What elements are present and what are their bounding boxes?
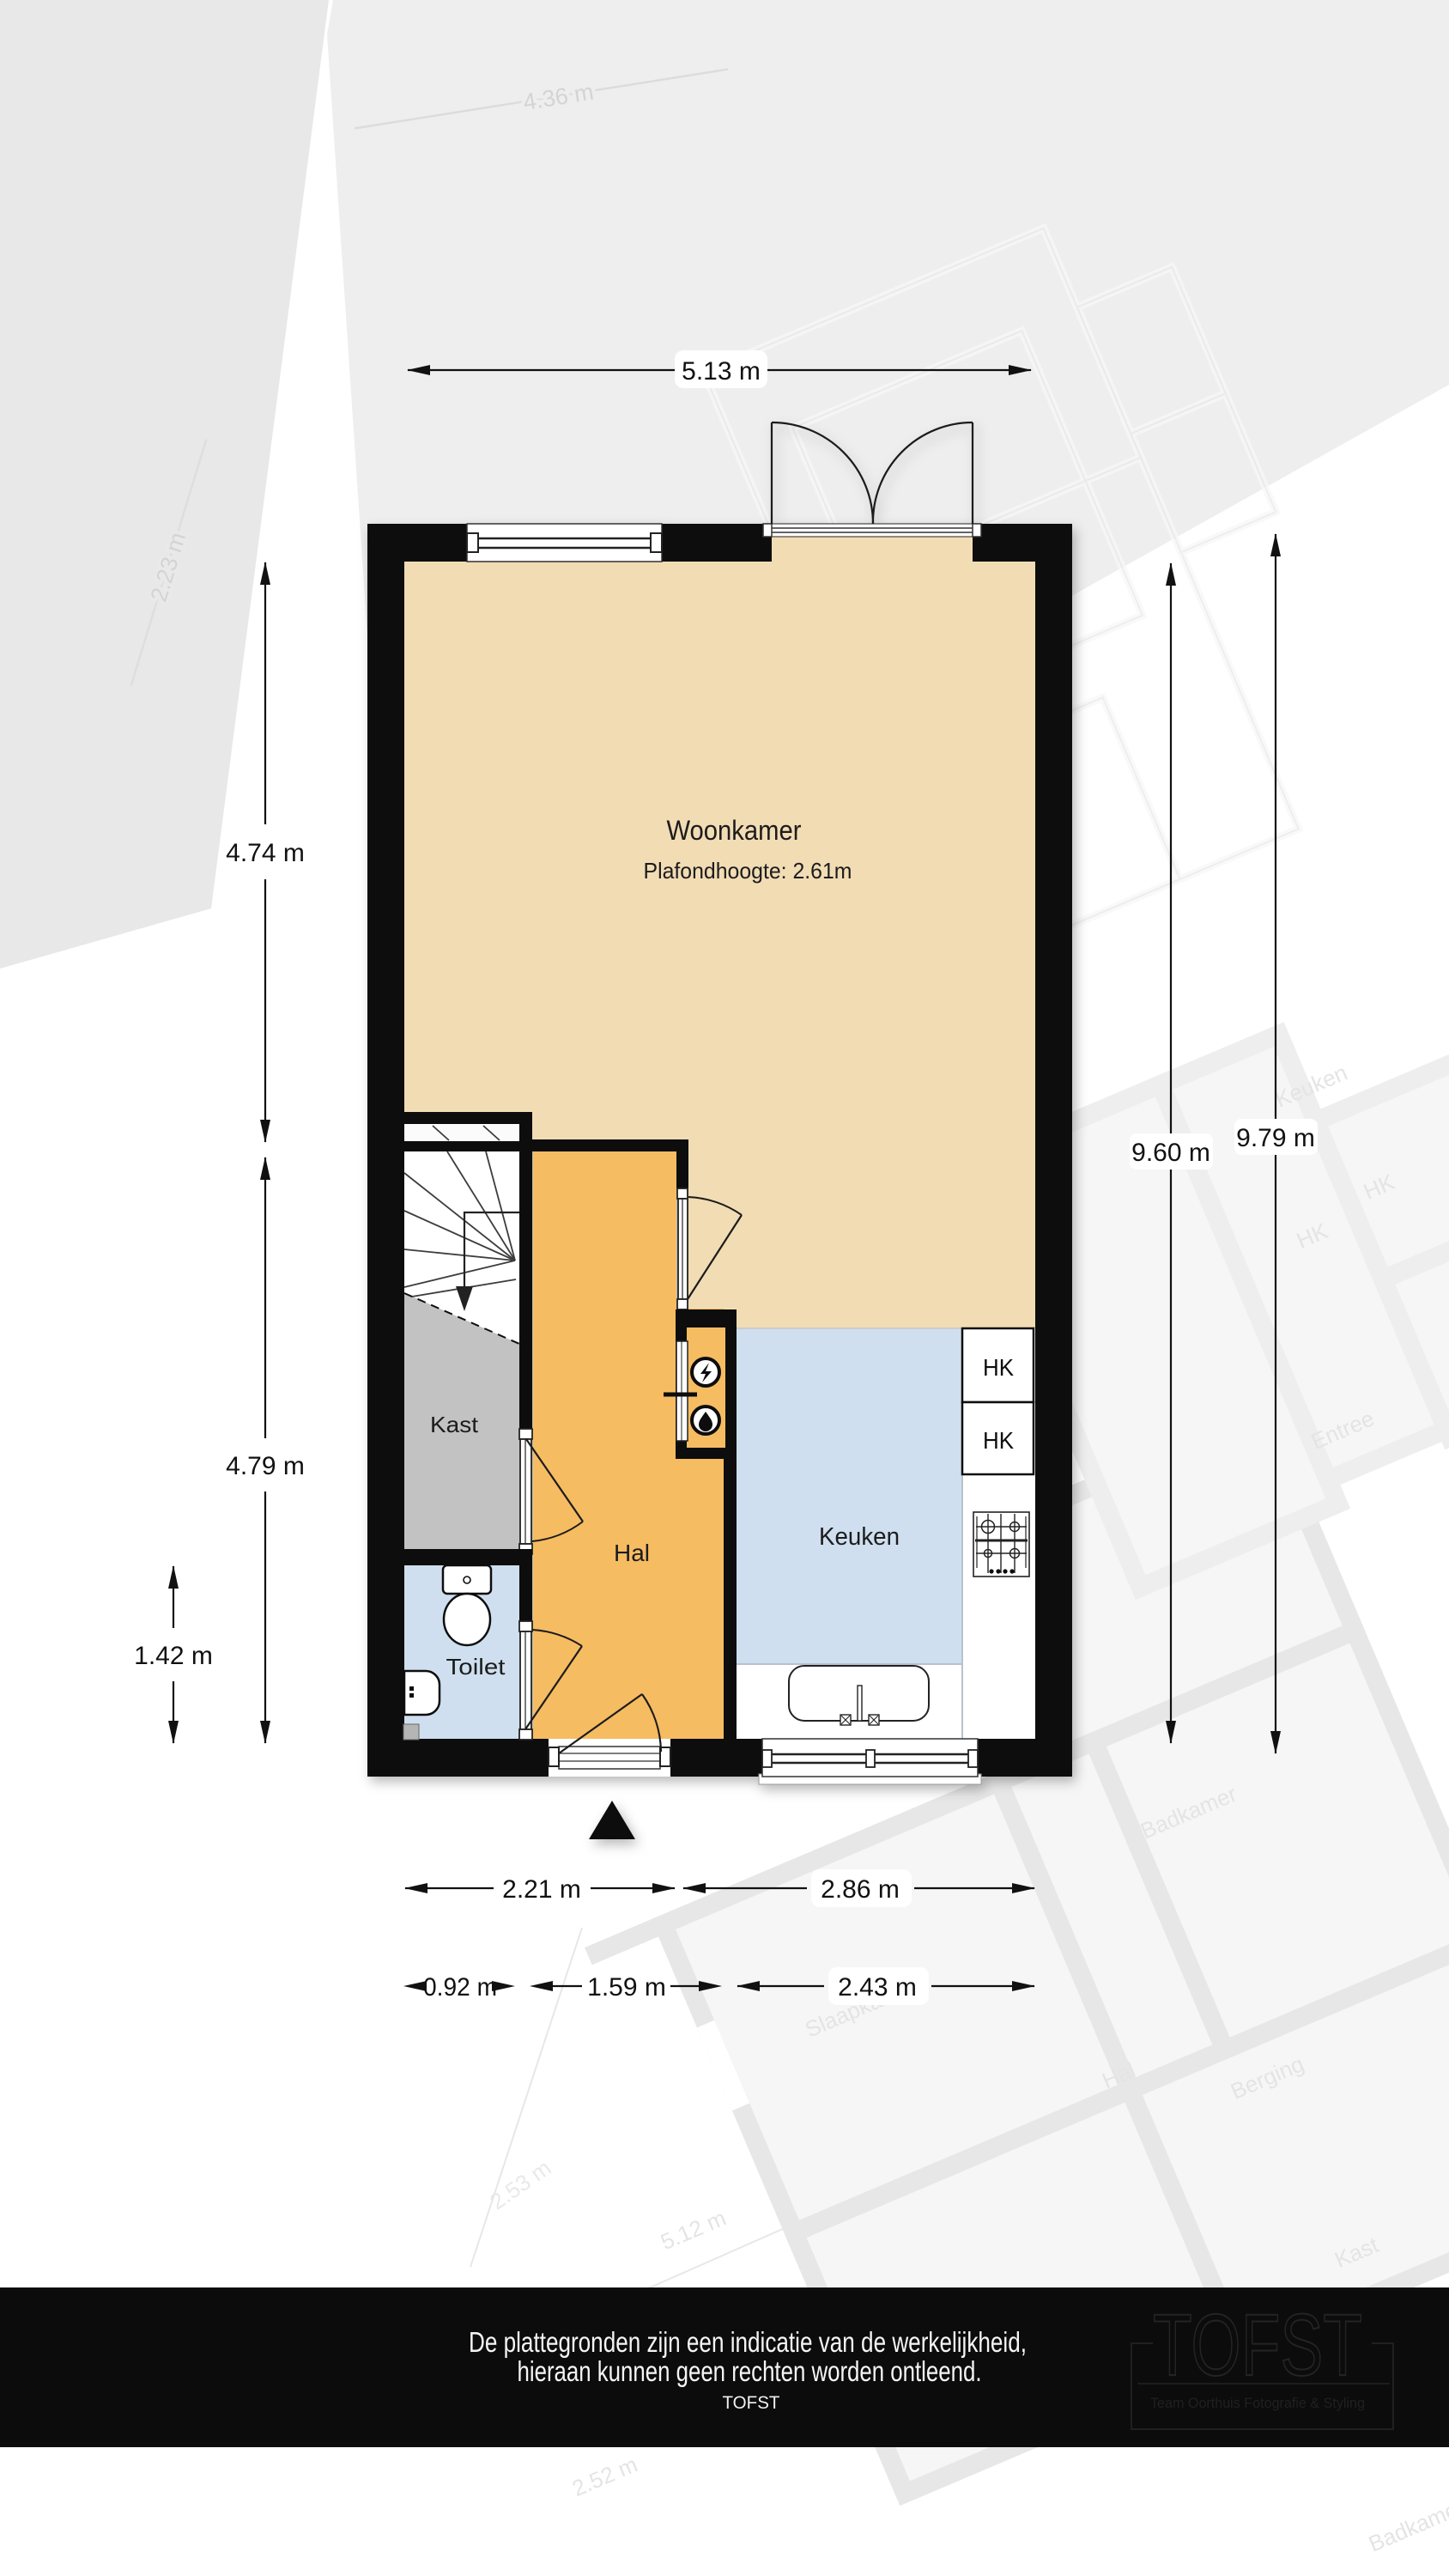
svg-text:1.42 m: 1.42 m: [134, 1642, 213, 1670]
svg-text:5.13 m: 5.13 m: [682, 357, 761, 386]
svg-text:Toilet: Toilet: [446, 1654, 506, 1680]
svg-text:hieraan kunnen geen rechten wo: hieraan kunnen geen rechten worden ontle…: [518, 2355, 982, 2387]
svg-text:1.59 m: 1.59 m: [587, 1973, 666, 2002]
svg-text:HK: HK: [983, 1354, 1014, 1381]
svg-text:4.79 m: 4.79 m: [226, 1452, 305, 1480]
svg-text:0.92 m: 0.92 m: [423, 1973, 497, 2002]
svg-text:2.86 m: 2.86 m: [821, 1875, 900, 1904]
svg-text:De plattegronden zijn een indi: De plattegronden zijn een indicatie van …: [469, 2326, 1027, 2358]
svg-text:Team Oorthuis Fotografie & Sty: Team Oorthuis Fotografie & Styling: [1150, 2395, 1365, 2411]
svg-text:2.21 m: 2.21 m: [502, 1875, 581, 1904]
svg-text:Woonkamer: Woonkamer: [667, 815, 802, 846]
svg-text:Kast: Kast: [430, 1412, 479, 1437]
svg-text:TOFST: TOFST: [1153, 2296, 1362, 2394]
svg-text:Hal: Hal: [614, 1540, 650, 1566]
svg-text:9.79 m: 9.79 m: [1236, 1124, 1315, 1152]
svg-text:Plafondhoogte: 2.61m: Plafondhoogte: 2.61m: [644, 858, 852, 884]
svg-text:4.74 m: 4.74 m: [226, 839, 305, 867]
svg-text:9.60 m: 9.60 m: [1131, 1139, 1210, 1167]
svg-text:Keuken: Keuken: [819, 1523, 900, 1551]
svg-text:HK: HK: [983, 1427, 1014, 1454]
svg-text:TOFST: TOFST: [723, 2393, 780, 2413]
svg-text:2.43 m: 2.43 m: [838, 1973, 917, 2002]
